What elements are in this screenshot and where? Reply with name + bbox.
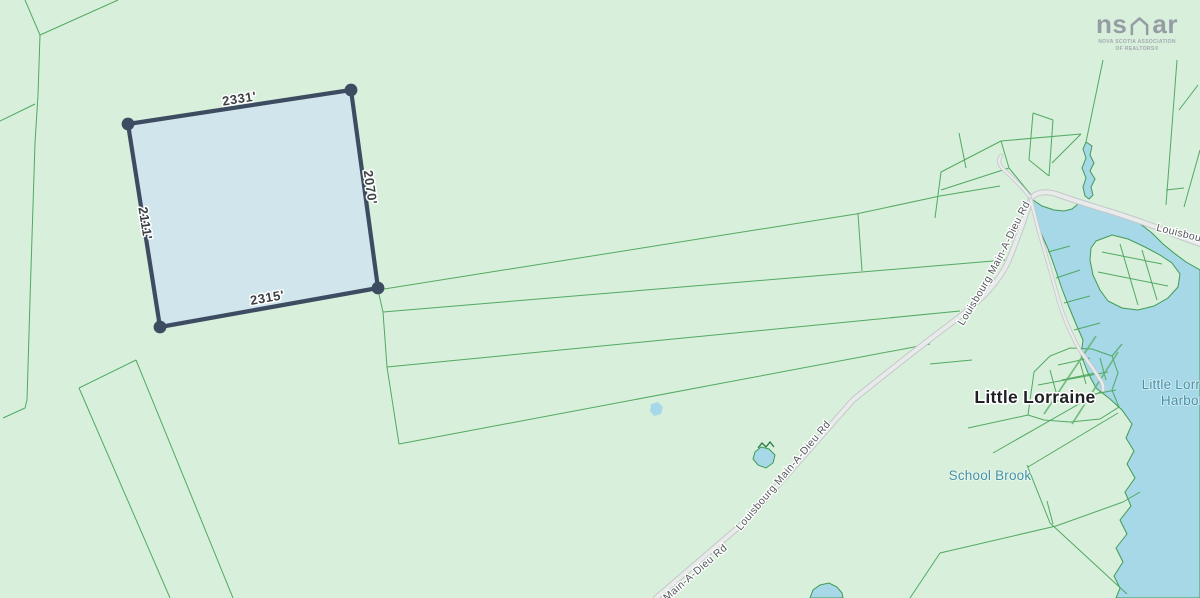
nsar-logo-text-post: ar (1152, 11, 1178, 37)
subject-parcel[interactable] (128, 90, 378, 327)
nsar-tagline-line1: NOVA SCOTIA ASSOCIATION (1082, 39, 1192, 46)
map-canvas[interactable]: 2331' 2070' 2315' 2111' Louisbourg Main-… (0, 0, 1200, 598)
parcel-vertex-northwest (122, 118, 135, 131)
town-label: Little Lorraine (974, 387, 1095, 407)
nsar-logo: ns ar NOVA SCOTIA ASSOCIATION OF REALTOR… (1082, 11, 1192, 52)
parcel-vertex-northeast (345, 84, 358, 97)
nsar-logo-text-pre: ns (1096, 11, 1127, 37)
map-viewport: 2331' 2070' 2315' 2111' Louisbourg Main-… (0, 0, 1200, 598)
subject-parcel-overlay: 2331' 2070' 2315' 2111' (122, 84, 385, 334)
house-icon (1129, 16, 1150, 37)
brook-label: School Brook (949, 468, 1032, 483)
parcel-vertex-southeast (372, 282, 385, 295)
nsar-logo-wordmark: ns ar (1082, 11, 1192, 37)
parcel-vertex-southwest (154, 321, 167, 334)
nsar-tagline-line2: OF REALTORS® (1082, 46, 1192, 53)
